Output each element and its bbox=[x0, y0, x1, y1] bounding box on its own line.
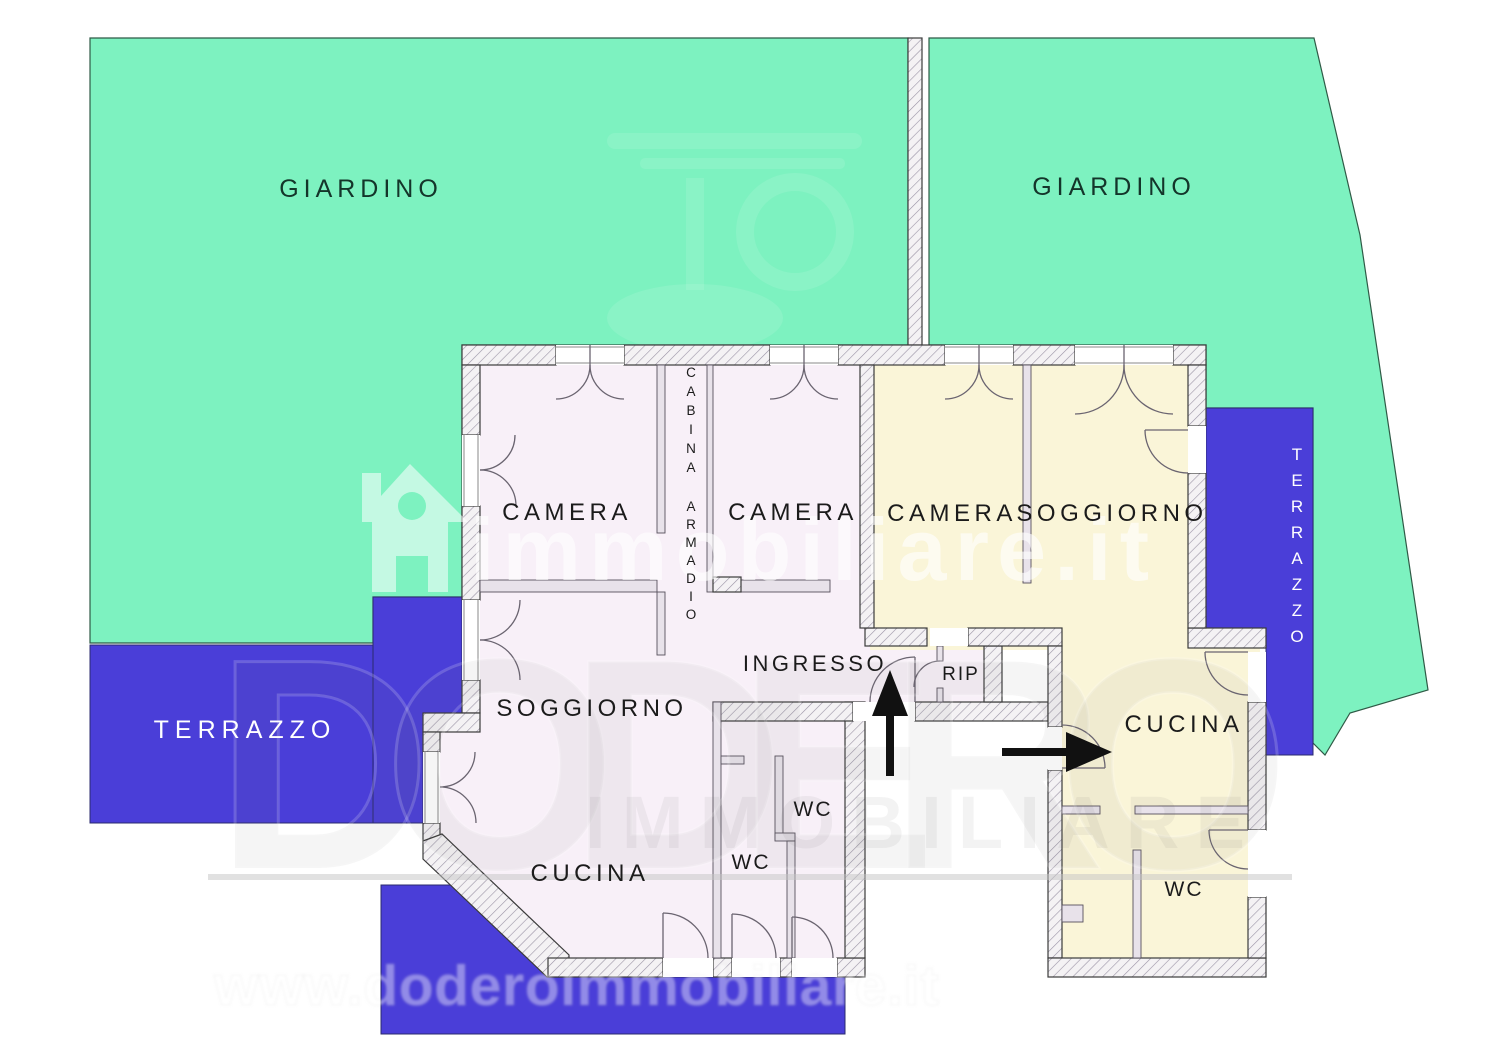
label-camera-1: CAMERA bbox=[502, 499, 632, 526]
label-cucina-right: CUCINA bbox=[1124, 711, 1243, 738]
label-garden-right: GIARDINO bbox=[1032, 173, 1196, 201]
wall-right-upper bbox=[1188, 365, 1206, 426]
garden-divider-wall bbox=[908, 38, 922, 345]
watermark-divider-line bbox=[208, 874, 1292, 880]
label-soggiorno-left: SOGGIORNO bbox=[496, 695, 687, 722]
watermark-url-text: www.doderoimmobiliare.it bbox=[213, 954, 939, 1018]
wall-top bbox=[838, 345, 945, 365]
wall-top bbox=[624, 345, 770, 365]
house-icon-door bbox=[396, 556, 428, 592]
label-cucina-left: CUCINA bbox=[530, 860, 649, 887]
wall-top bbox=[1013, 345, 1075, 365]
label-camera-3: CAMERA bbox=[887, 500, 1017, 527]
label-wc-right: WC bbox=[1165, 878, 1204, 901]
label-wc-left-lower: WC bbox=[732, 851, 771, 874]
label-garden-left: GIARDINO bbox=[279, 175, 443, 203]
wall-top bbox=[1173, 345, 1206, 365]
label-terrace-left: TERRAZZO bbox=[154, 716, 337, 744]
wall-bottom-right-apartment bbox=[1048, 958, 1266, 977]
label-wc-left-upper: WC bbox=[794, 798, 833, 821]
label-ingresso: INGRESSO bbox=[743, 651, 887, 676]
house-icon-window bbox=[398, 492, 426, 520]
watermark-agency-text: DODERO bbox=[215, 596, 1290, 932]
floor-plan-canvas: DODERO IMMOBILIARE immobiliare.it www.do… bbox=[0, 0, 1502, 1050]
wall-left bbox=[462, 365, 480, 435]
wall-top bbox=[462, 345, 556, 365]
floor-plan-page: DODERO IMMOBILIARE immobiliare.it www.do… bbox=[0, 0, 1502, 1050]
label-soggiorno-right: SOGGIORNO bbox=[1016, 500, 1207, 527]
label-rip: RIP bbox=[942, 664, 980, 685]
label-camera-2: CAMERA bbox=[728, 499, 858, 526]
